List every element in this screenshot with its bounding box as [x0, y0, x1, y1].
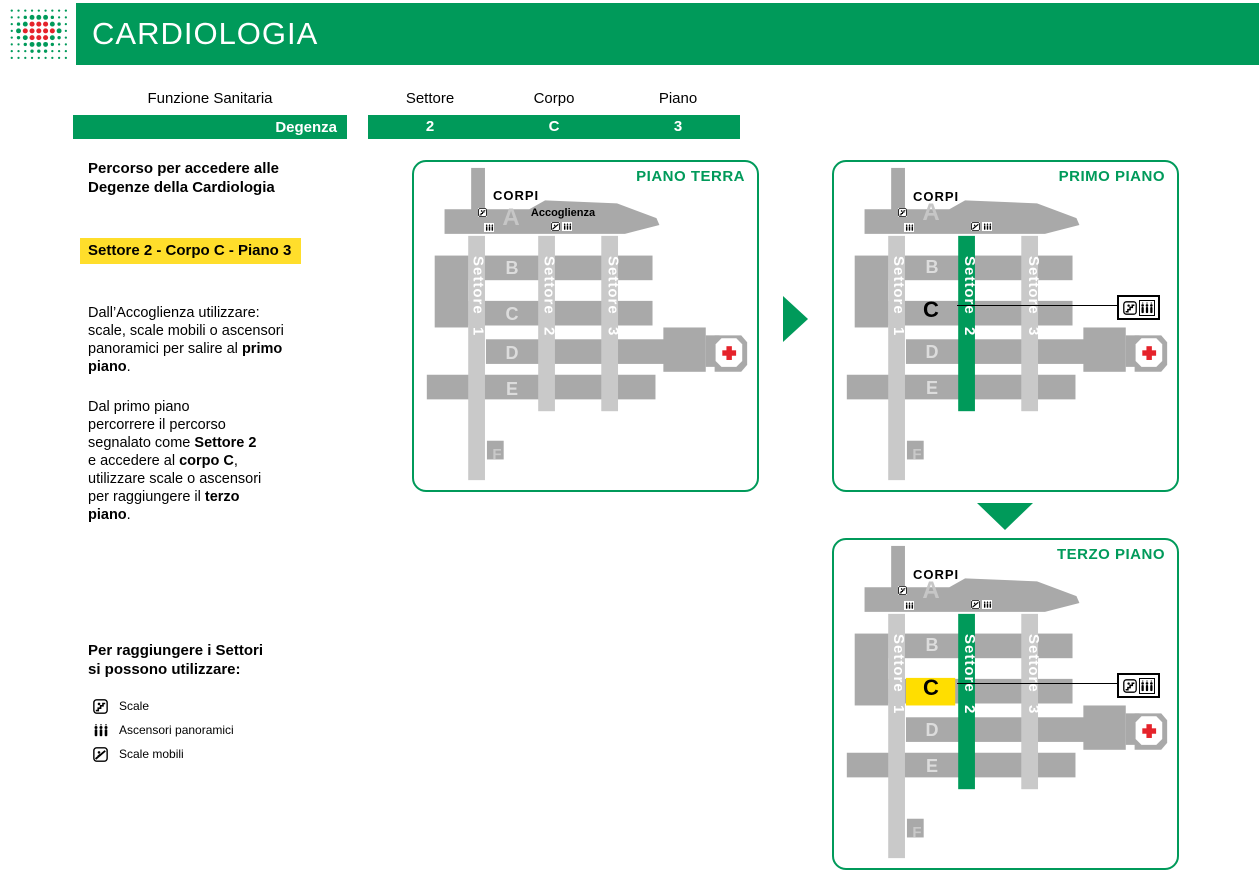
- panoramic-elevator-icon: [92, 722, 109, 738]
- body-c-label-highlighted: C: [918, 301, 944, 319]
- legend-heading: Per raggiungere i Settori si possono uti…: [88, 641, 263, 679]
- corpo-label: Corpo: [492, 90, 616, 107]
- stairs-icon: [898, 586, 907, 595]
- escalator-icon: [971, 222, 980, 231]
- stairs-icon: [1123, 679, 1137, 693]
- body-c-label-highlighted: C: [918, 679, 944, 697]
- funzione-sanitaria-label: Funzione Sanitaria: [73, 90, 347, 107]
- route-column-values-bar: 2 C 3: [368, 115, 740, 139]
- panoramic-elevator-icon: [982, 600, 992, 609]
- callout-box: [1117, 673, 1160, 698]
- floor-map: [834, 162, 1177, 489]
- accoglienza-label: Accoglienza: [526, 207, 600, 219]
- panoramic-elevator-icon: [1140, 679, 1154, 693]
- panel-piano-terra: PIANO TERRA CORPI A Accoglienza Settore1…: [412, 160, 759, 492]
- page-title: CARDIOLOGIA: [76, 16, 318, 52]
- escalator-icon: [92, 746, 109, 762]
- panoramic-elevator-icon: [904, 601, 914, 610]
- body-d-label: D: [922, 343, 942, 361]
- legend-item-ascensori: Ascensori panoramici: [92, 718, 234, 742]
- route-highlight: Settore 2 - Corpo C - Piano 3: [80, 238, 301, 264]
- piano-label: Piano: [616, 90, 740, 107]
- arrow-down-icon: [977, 503, 1033, 530]
- body-f-label: F: [909, 446, 925, 464]
- body-a-label: A: [921, 582, 941, 600]
- settore-2-band-label: Settore2: [960, 256, 978, 374]
- panoramic-elevator-icon: [1140, 301, 1154, 315]
- callout-line: [957, 683, 1118, 684]
- intro-text: Percorso per accedere alle Degenze della…: [88, 159, 279, 197]
- body-b-label: B: [922, 258, 942, 276]
- body-d-label: D: [502, 343, 522, 364]
- body-b-label: B: [922, 636, 942, 654]
- escalator-icon: [971, 600, 980, 609]
- body-f-label: F: [909, 824, 925, 842]
- body-a-label: A: [501, 204, 521, 232]
- floor-map: [834, 540, 1177, 867]
- legend: Scale Ascensori panoramici Scale mobili: [92, 694, 234, 766]
- stairs-icon: [478, 208, 487, 217]
- funzione-value: Degenza: [275, 119, 337, 136]
- body-b-label: B: [502, 258, 522, 279]
- piano-value: 3: [616, 115, 740, 139]
- body-e-label: E: [502, 379, 522, 400]
- route-column-labels: Settore Corpo Piano: [368, 90, 740, 107]
- panel-terzo-piano: TERZO PIANO CORPI A Settore1 Settore2 Se…: [832, 538, 1179, 870]
- settore-value: 2: [368, 115, 492, 139]
- body-c-label: C: [502, 304, 522, 325]
- paragraph-accoglienza: Dall’Accoglienza utilizzare: scale, scal…: [88, 304, 284, 376]
- title-bar: CARDIOLOGIA: [76, 3, 1259, 65]
- legend-item-scale: Scale: [92, 694, 234, 718]
- panel-primo-piano: PRIMO PIANO CORPI A Settore1 Settore2 Se…: [832, 160, 1179, 492]
- settore-3-band-label: Settore3: [604, 256, 622, 374]
- body-a-label: A: [921, 204, 941, 222]
- callout-line: [957, 305, 1118, 306]
- corpo-value: C: [492, 115, 616, 139]
- panoramic-elevator-icon: [904, 223, 914, 232]
- arrow-right-icon: [783, 296, 808, 342]
- stairs-icon: [92, 698, 109, 714]
- stairs-icon: [898, 208, 907, 217]
- callout-box: [1117, 295, 1160, 320]
- settore-label: Settore: [368, 90, 492, 107]
- settore-2-band-label: Settore2: [540, 256, 558, 374]
- panoramic-elevator-icon: [982, 222, 992, 231]
- body-e-label: E: [922, 379, 942, 397]
- floor-title: TERZO PIANO: [1057, 546, 1165, 564]
- body-e-label: E: [922, 757, 942, 775]
- escalator-icon: [551, 222, 560, 231]
- settore-2-band-label: Settore2: [960, 634, 978, 752]
- settore-1-band-label: Settore1: [889, 634, 907, 752]
- settore-3-band-label: Settore3: [1024, 256, 1042, 374]
- floor-title: PRIMO PIANO: [1059, 168, 1165, 186]
- panoramic-elevator-icon: [484, 223, 494, 232]
- funzione-sanitaria-value-bar: Degenza: [73, 115, 347, 139]
- settore-1-band-label: Settore1: [889, 256, 907, 374]
- paragraph-percorso: Dal primo piano percorrere il percorso s…: [88, 398, 261, 524]
- logo-dots: [8, 6, 70, 64]
- body-f-label: F: [489, 446, 505, 463]
- legend-item-scale-mobili: Scale mobili: [92, 742, 234, 766]
- corpi-label: CORPI: [493, 188, 539, 203]
- settore-1-band-label: Settore1: [469, 256, 487, 374]
- panoramic-elevator-icon: [562, 222, 572, 231]
- settore-3-band-label: Settore3: [1024, 634, 1042, 752]
- stairs-icon: [1123, 301, 1137, 315]
- page: CARDIOLOGIA Funzione Sanitaria Degenza S…: [0, 0, 1259, 888]
- body-d-label: D: [922, 721, 942, 739]
- floor-title: PIANO TERRA: [636, 168, 745, 185]
